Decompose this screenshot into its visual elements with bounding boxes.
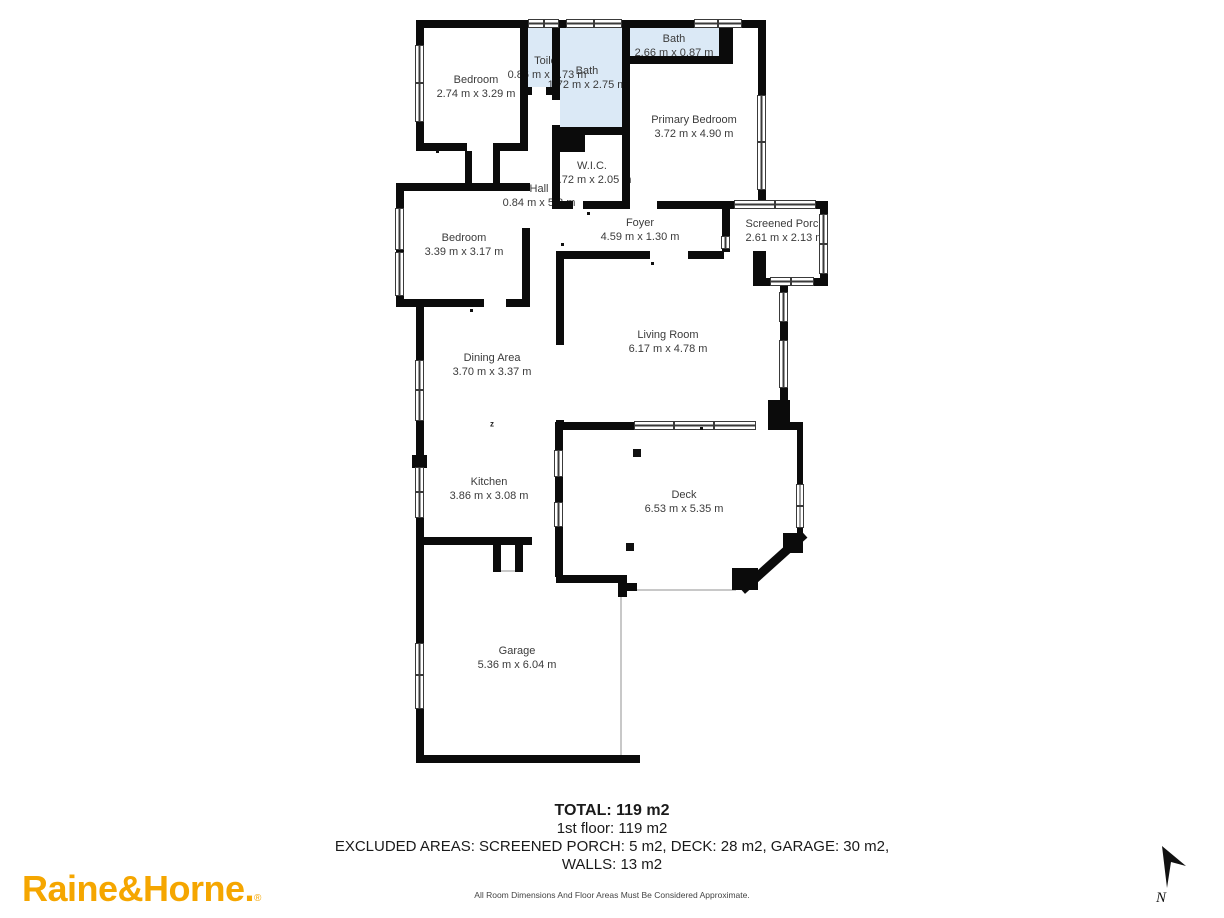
room-label-living-room: Living Room 6.17 m x 4.78 m bbox=[629, 328, 708, 356]
room-label-primary-bedroom: Primary Bedroom 3.72 m x 4.90 m bbox=[651, 113, 737, 141]
room-name: Garage bbox=[478, 644, 557, 658]
door-mark bbox=[587, 212, 590, 215]
room-name: Screened Porch bbox=[746, 217, 825, 231]
door-mark bbox=[651, 262, 654, 265]
room-label-kitchen: Kitchen 3.86 m x 3.08 m bbox=[450, 475, 529, 503]
wall-segment bbox=[396, 299, 484, 307]
wall-segment bbox=[520, 20, 528, 147]
window-symbol bbox=[779, 292, 788, 322]
room-label-deck: Deck 6.53 m x 5.35 m bbox=[645, 488, 724, 516]
room-dims: 3.86 m x 3.08 m bbox=[450, 489, 529, 503]
window-divider bbox=[796, 505, 804, 507]
wall-segment bbox=[797, 422, 803, 484]
floor-plan: Bedroom 2.74 m x 3.29 m Toilet 0.86 m x … bbox=[0, 0, 1224, 918]
wall-segment bbox=[768, 400, 790, 430]
window-divider bbox=[415, 82, 424, 84]
room-dims: 4.59 m x 1.30 m bbox=[601, 230, 680, 244]
wall-segment bbox=[583, 127, 630, 135]
wall-segment bbox=[618, 583, 627, 597]
window-divider bbox=[774, 200, 776, 209]
wall-segment bbox=[555, 477, 563, 502]
room-name: Bath bbox=[635, 32, 714, 46]
window-divider bbox=[717, 19, 719, 28]
deck-edge-line bbox=[636, 589, 736, 591]
excluded-areas-text-line1: EXCLUDED AREAS: SCREENED PORCH: 5 m2, DE… bbox=[0, 838, 1224, 856]
room-label-screened-porch: Screened Porch 2.61 m x 2.13 m bbox=[746, 217, 825, 245]
room-label-foyer: Foyer 4.59 m x 1.30 m bbox=[601, 216, 680, 244]
wall-segment bbox=[556, 422, 634, 430]
wall-segment bbox=[583, 201, 627, 209]
room-name: Living Room bbox=[629, 328, 708, 342]
total-area-text: TOTAL: 119 m2 bbox=[0, 802, 1224, 820]
window-divider bbox=[673, 421, 675, 430]
window-symbol bbox=[770, 277, 814, 286]
room-name: Bedroom bbox=[425, 231, 504, 245]
wall-segment bbox=[556, 259, 564, 345]
wall-segment bbox=[657, 201, 724, 209]
wall-segment bbox=[493, 143, 528, 151]
sliding-door-symbol bbox=[634, 421, 756, 430]
north-label: N bbox=[1155, 890, 1167, 906]
room-name: Kitchen bbox=[450, 475, 529, 489]
window-symbol bbox=[395, 208, 404, 250]
door-mark bbox=[561, 243, 564, 246]
deck-post bbox=[626, 543, 634, 551]
window-divider bbox=[819, 243, 828, 245]
sleep-marker: z bbox=[490, 420, 494, 429]
wall-segment bbox=[555, 527, 563, 577]
window-symbol bbox=[721, 236, 730, 249]
room-dims: 2.74 m x 3.29 m bbox=[437, 87, 516, 101]
raine-and-horne-logo: Raine&Horne.® bbox=[22, 868, 261, 910]
wall-segment bbox=[418, 537, 532, 545]
garage-opening-line bbox=[620, 597, 622, 755]
window-divider bbox=[790, 277, 792, 286]
wall-segment bbox=[396, 183, 530, 191]
wall-segment bbox=[556, 127, 585, 152]
wall-segment bbox=[555, 422, 563, 450]
room-name: Bedroom bbox=[437, 73, 516, 87]
room-dims: 5.36 m x 6.04 m bbox=[478, 658, 557, 672]
wall-segment bbox=[552, 201, 573, 209]
wall-segment bbox=[783, 533, 803, 553]
window-divider bbox=[415, 674, 424, 676]
room-dims: 6.53 m x 5.35 m bbox=[645, 502, 724, 516]
window-divider bbox=[713, 421, 715, 430]
wall-segment bbox=[524, 87, 532, 95]
deck-post bbox=[633, 449, 641, 457]
door-mark bbox=[436, 150, 439, 153]
room-name: Dining Area bbox=[453, 351, 532, 365]
wall-segment bbox=[630, 56, 719, 64]
room-name: Deck bbox=[645, 488, 724, 502]
room-dims: 3.39 m x 3.17 m bbox=[425, 245, 504, 259]
wall-segment bbox=[622, 20, 630, 209]
wall-segment bbox=[465, 151, 472, 183]
room-dims: 3.70 m x 3.37 m bbox=[453, 365, 532, 379]
wall-segment bbox=[719, 26, 733, 64]
wall-segment bbox=[688, 251, 724, 259]
room-label-bedroom-2: Bedroom 3.39 m x 3.17 m bbox=[425, 231, 504, 259]
wall-segment bbox=[556, 575, 627, 583]
window-symbol bbox=[554, 502, 563, 527]
door-mark bbox=[470, 309, 473, 312]
window-divider bbox=[593, 19, 595, 28]
north-arrow-icon: N bbox=[1150, 840, 1210, 910]
window-symbol bbox=[554, 450, 563, 477]
window-symbol bbox=[415, 643, 424, 709]
door-mark bbox=[700, 427, 703, 430]
wall-segment bbox=[493, 545, 501, 572]
wall-segment bbox=[416, 143, 467, 151]
window-symbol bbox=[395, 252, 404, 296]
north-arrow: N bbox=[1150, 840, 1210, 910]
room-label-dining-area: Dining Area 3.70 m x 3.37 m bbox=[453, 351, 532, 379]
window-symbol bbox=[779, 340, 788, 388]
wall-segment bbox=[556, 251, 650, 259]
registered-mark: ® bbox=[254, 893, 261, 904]
room-label-garage: Garage 5.36 m x 6.04 m bbox=[478, 644, 557, 672]
room-dims: 3.72 m x 4.90 m bbox=[651, 127, 737, 141]
wall-segment bbox=[546, 87, 560, 95]
room-name: Primary Bedroom bbox=[651, 113, 737, 127]
window-divider bbox=[757, 141, 766, 143]
room-name: W.I.C. bbox=[553, 159, 632, 173]
window-divider bbox=[543, 19, 545, 28]
window-divider bbox=[415, 389, 424, 391]
wall-segment bbox=[416, 755, 640, 763]
room-name: Foyer bbox=[601, 216, 680, 230]
room-dims: 2.61 m x 2.13 m bbox=[746, 231, 825, 245]
floor-area-text: 1st floor: 119 m2 bbox=[0, 820, 1224, 838]
room-dims: 6.17 m x 4.78 m bbox=[629, 342, 708, 356]
wall-segment bbox=[627, 583, 637, 591]
room-label-bedroom-1: Bedroom 2.74 m x 3.29 m bbox=[437, 73, 516, 101]
deck-step-block bbox=[732, 568, 758, 590]
wall-segment bbox=[522, 228, 530, 307]
window-divider bbox=[415, 491, 424, 493]
logo-text: Raine&Horne. bbox=[22, 868, 254, 909]
wall-segment bbox=[515, 545, 523, 572]
